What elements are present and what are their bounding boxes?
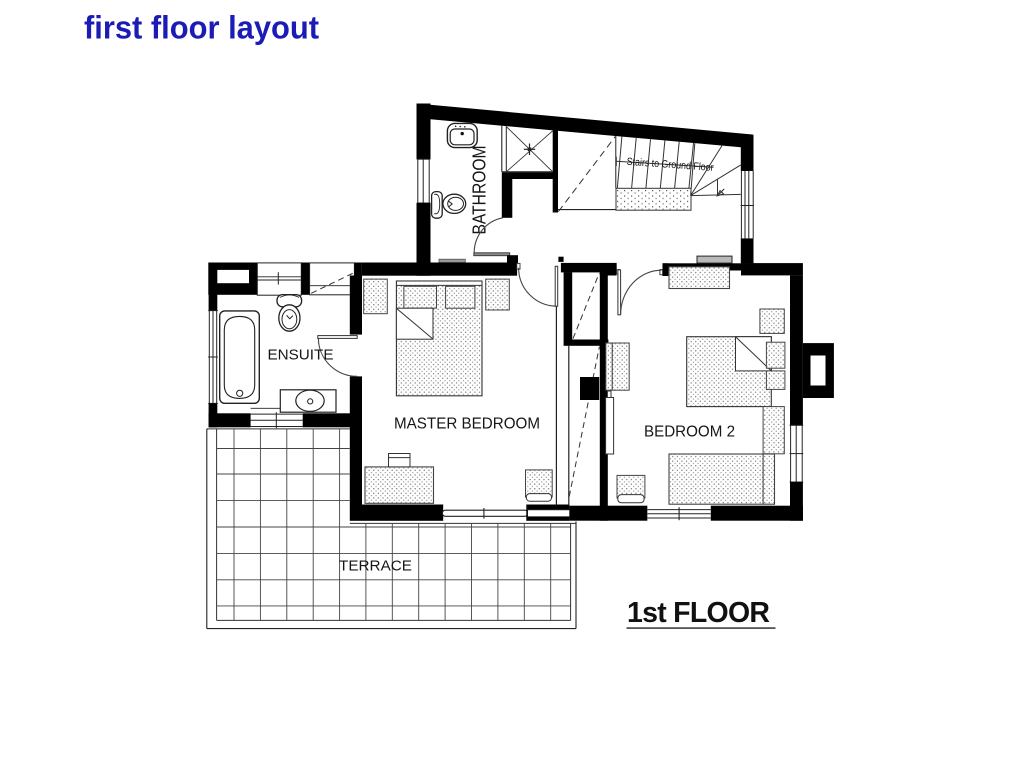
svg-text:ENSUITE: ENSUITE — [268, 348, 334, 364]
svg-text:TERRACE: TERRACE — [339, 558, 412, 575]
svg-text:BEDROOM 2: BEDROOM 2 — [644, 424, 735, 441]
svg-text:first floor layout: first floor layout — [84, 10, 319, 46]
svg-text:MASTER BEDROOM: MASTER BEDROOM — [394, 416, 540, 433]
svg-text:1st FLOOR: 1st FLOOR — [627, 597, 770, 629]
svg-text:BATHROOM: BATHROOM — [469, 146, 490, 235]
